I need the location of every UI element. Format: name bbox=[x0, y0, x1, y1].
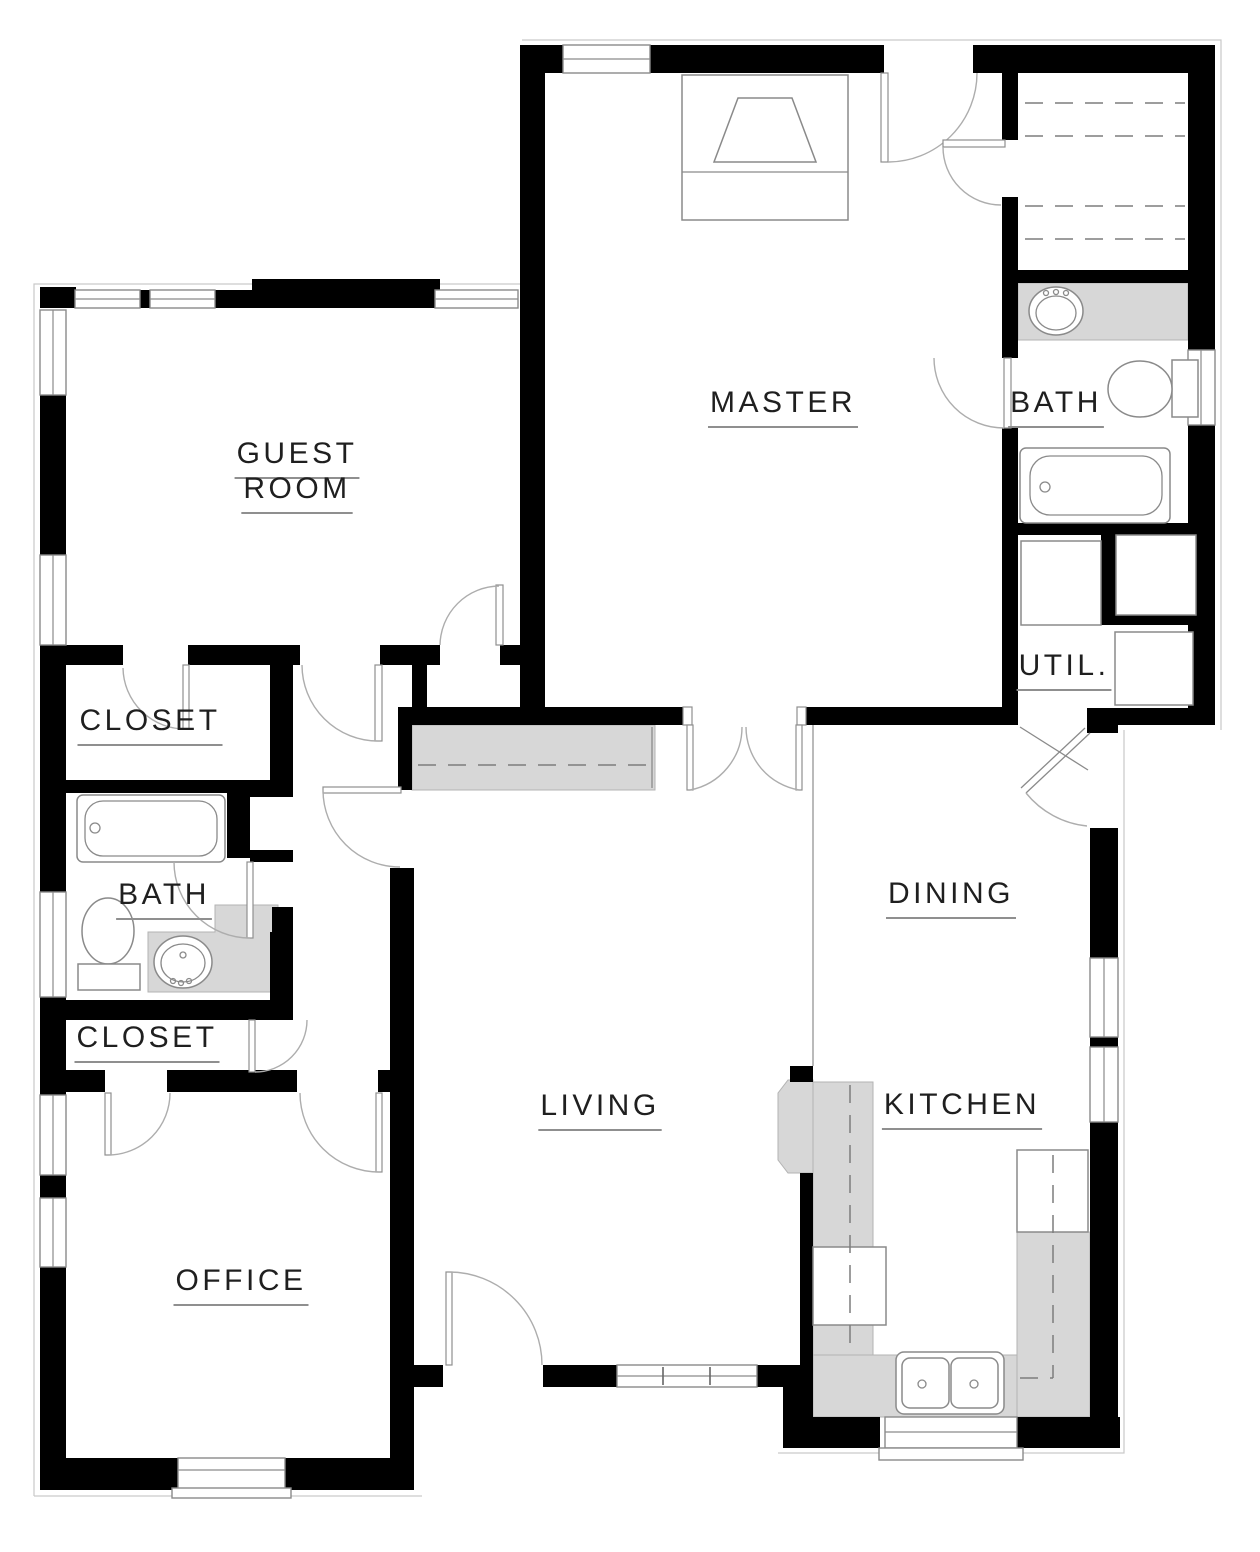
vanity-sink-icon bbox=[1029, 287, 1083, 335]
room-label-text: BATH bbox=[118, 878, 210, 911]
door-guest-corridor bbox=[302, 665, 382, 741]
room-label-dining: DINING bbox=[886, 877, 1016, 918]
door-guest-hall bbox=[440, 585, 503, 645]
room-label-text: LIVING bbox=[540, 1089, 659, 1122]
floor-plan: GUESTROOMMASTERBATHUTIL.CLOSETBATHCLOSET… bbox=[0, 0, 1260, 1552]
wall-segment bbox=[1087, 725, 1118, 733]
wall-segment bbox=[805, 707, 1017, 725]
room-label-bath-right: BATH bbox=[1008, 386, 1104, 427]
wardrobe-shelves-icon bbox=[1025, 103, 1185, 239]
window bbox=[75, 290, 140, 308]
wall-segment bbox=[520, 45, 545, 708]
wall-segment bbox=[40, 793, 66, 892]
wall-segment bbox=[40, 645, 123, 665]
room-label-text: CLOSET bbox=[79, 704, 220, 737]
window bbox=[40, 892, 66, 997]
wall-segment bbox=[378, 1070, 414, 1092]
wall-segment bbox=[543, 1365, 617, 1387]
door-master-closet bbox=[943, 140, 1005, 205]
wall-segment bbox=[40, 1070, 105, 1092]
room-label-guest-room-2: ROOM bbox=[241, 472, 352, 513]
door-office-living bbox=[300, 1093, 382, 1172]
room-label-closet-lower: CLOSET bbox=[74, 1021, 219, 1062]
wall-segment bbox=[1002, 535, 1018, 725]
wall-segment bbox=[1101, 523, 1116, 625]
range-icon bbox=[813, 1247, 886, 1325]
bed-icon bbox=[682, 75, 848, 220]
wall-segment bbox=[40, 287, 76, 308]
door-living-exterior bbox=[446, 1272, 542, 1365]
wall-segment bbox=[1002, 197, 1018, 270]
wall-segment bbox=[398, 725, 412, 790]
door-office-hall bbox=[105, 1093, 170, 1155]
wall-segment bbox=[783, 1417, 880, 1448]
wall-segment bbox=[285, 1458, 414, 1490]
door-hall-double bbox=[683, 707, 806, 790]
wall-segment bbox=[140, 290, 150, 308]
room-label-text: GUEST bbox=[237, 437, 358, 470]
wall-segment bbox=[40, 1000, 293, 1020]
wall-segment bbox=[1002, 270, 1188, 283]
wall-segment bbox=[790, 1066, 813, 1082]
wall-segment bbox=[40, 780, 227, 793]
bathtub-icon bbox=[77, 795, 225, 862]
room-label-text: MASTER bbox=[710, 386, 856, 419]
counter bbox=[778, 1080, 813, 1173]
room-label-text: DINING bbox=[888, 877, 1014, 910]
room-label-master: MASTER bbox=[708, 386, 858, 427]
door-entry bbox=[1020, 727, 1090, 826]
room-label-living: LIVING bbox=[538, 1089, 661, 1130]
wall-segment bbox=[227, 780, 250, 858]
floor-plan-drawing: GUESTROOMMASTERBATHUTIL.CLOSETBATHCLOSET… bbox=[0, 0, 1260, 1552]
washer-icon bbox=[1021, 541, 1101, 625]
room-label-text: ROOM bbox=[243, 472, 350, 505]
wall-segment bbox=[250, 850, 293, 862]
wall-segment bbox=[390, 868, 414, 1490]
room-label-text: OFFICE bbox=[176, 1264, 307, 1297]
door-master-exterior bbox=[881, 73, 977, 162]
wall-segment bbox=[398, 707, 683, 725]
wall-segment bbox=[414, 1365, 443, 1387]
room-label-util: UTIL. bbox=[1017, 649, 1112, 690]
bathtub-icon bbox=[1020, 448, 1170, 523]
room-label-office: OFFICE bbox=[174, 1264, 309, 1305]
wall-segment bbox=[1188, 73, 1215, 350]
counter bbox=[412, 725, 655, 790]
wall-segment bbox=[1087, 708, 1215, 725]
window bbox=[172, 1458, 291, 1498]
wall-segment bbox=[40, 645, 66, 793]
room-label-text: KITCHEN bbox=[884, 1088, 1040, 1121]
wall-segment bbox=[500, 645, 520, 665]
wall-segment bbox=[230, 1012, 252, 1020]
toilet-icon bbox=[78, 898, 140, 990]
window bbox=[1090, 958, 1118, 1037]
window bbox=[40, 555, 66, 645]
window bbox=[879, 1417, 1023, 1460]
room-label-text: UTIL. bbox=[1019, 649, 1110, 682]
room-label-kitchen: KITCHEN bbox=[882, 1088, 1042, 1129]
wall-segment bbox=[188, 645, 300, 665]
wall-segment bbox=[1002, 73, 1018, 140]
window bbox=[40, 310, 66, 395]
door-master-bath bbox=[934, 358, 1011, 428]
wall-segment bbox=[1090, 828, 1118, 958]
water-heater-icon bbox=[1115, 632, 1193, 705]
room-label-text: BATH bbox=[1010, 386, 1102, 419]
window bbox=[150, 290, 215, 308]
wall-segment bbox=[167, 1070, 297, 1092]
wall-segment bbox=[252, 279, 440, 308]
wall-segment bbox=[650, 45, 884, 73]
window bbox=[1090, 1047, 1118, 1122]
wall-segment bbox=[40, 1458, 178, 1490]
vanity-sink-icon bbox=[154, 936, 212, 988]
dryer-icon bbox=[1116, 535, 1196, 615]
wall-segment bbox=[1002, 523, 1188, 535]
double-kitchen-sink-icon bbox=[896, 1352, 1004, 1414]
wall-segment bbox=[215, 290, 255, 308]
wall-segment bbox=[40, 395, 66, 555]
wall-segment bbox=[1002, 428, 1018, 523]
wall-segment bbox=[272, 907, 293, 1010]
toilet-icon bbox=[1108, 360, 1198, 417]
room-label-text: CLOSET bbox=[76, 1021, 217, 1054]
window bbox=[40, 1198, 66, 1267]
wall-segment bbox=[40, 1175, 66, 1198]
wall-segment bbox=[380, 645, 440, 665]
door-corridor-living bbox=[323, 787, 401, 867]
wall-segment bbox=[1090, 1122, 1118, 1448]
wall-segment bbox=[1090, 1037, 1118, 1047]
room-label-closet-upper: CLOSET bbox=[77, 704, 222, 745]
wall-segment bbox=[1018, 45, 1215, 73]
wall-segment bbox=[270, 665, 293, 783]
wall-segment bbox=[973, 45, 1018, 73]
window bbox=[617, 1365, 757, 1387]
window bbox=[563, 45, 650, 73]
window bbox=[435, 290, 518, 308]
wall-segment bbox=[40, 1267, 66, 1490]
window bbox=[40, 1095, 66, 1175]
door-closet-lower bbox=[249, 1020, 307, 1072]
wall-segment bbox=[1002, 283, 1018, 358]
